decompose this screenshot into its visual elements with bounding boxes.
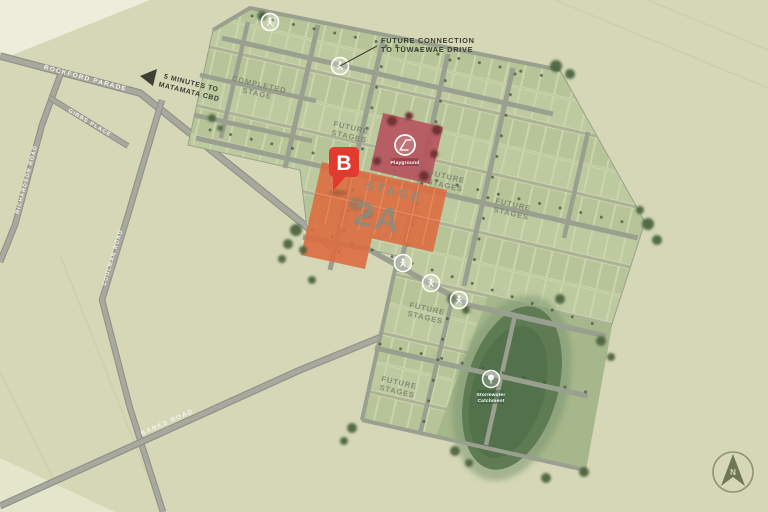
path-marker-5[interactable]: [451, 292, 468, 309]
playground-label: Playground: [391, 160, 420, 166]
playground-marker: [395, 135, 415, 155]
site-plan-page: STAGE 2A Playground COMPLETED: [0, 0, 768, 512]
svg-text:TO TŪWAEWAE DRIVE: TO TŪWAEWAE DRIVE: [381, 45, 473, 54]
site-plan-map: STAGE 2A Playground COMPLETED: [0, 0, 768, 512]
path-marker-4[interactable]: [423, 275, 440, 292]
path-marker-1[interactable]: [262, 14, 279, 31]
north-label: N: [730, 468, 736, 477]
path-marker-3[interactable]: [395, 255, 412, 272]
stormwater-label: Stormwater: [477, 392, 506, 398]
svg-text:Catchment: Catchment: [477, 398, 504, 404]
svg-text:FUTURE CONNECTION: FUTURE CONNECTION: [381, 36, 475, 45]
pin-b-label: B: [336, 152, 351, 175]
